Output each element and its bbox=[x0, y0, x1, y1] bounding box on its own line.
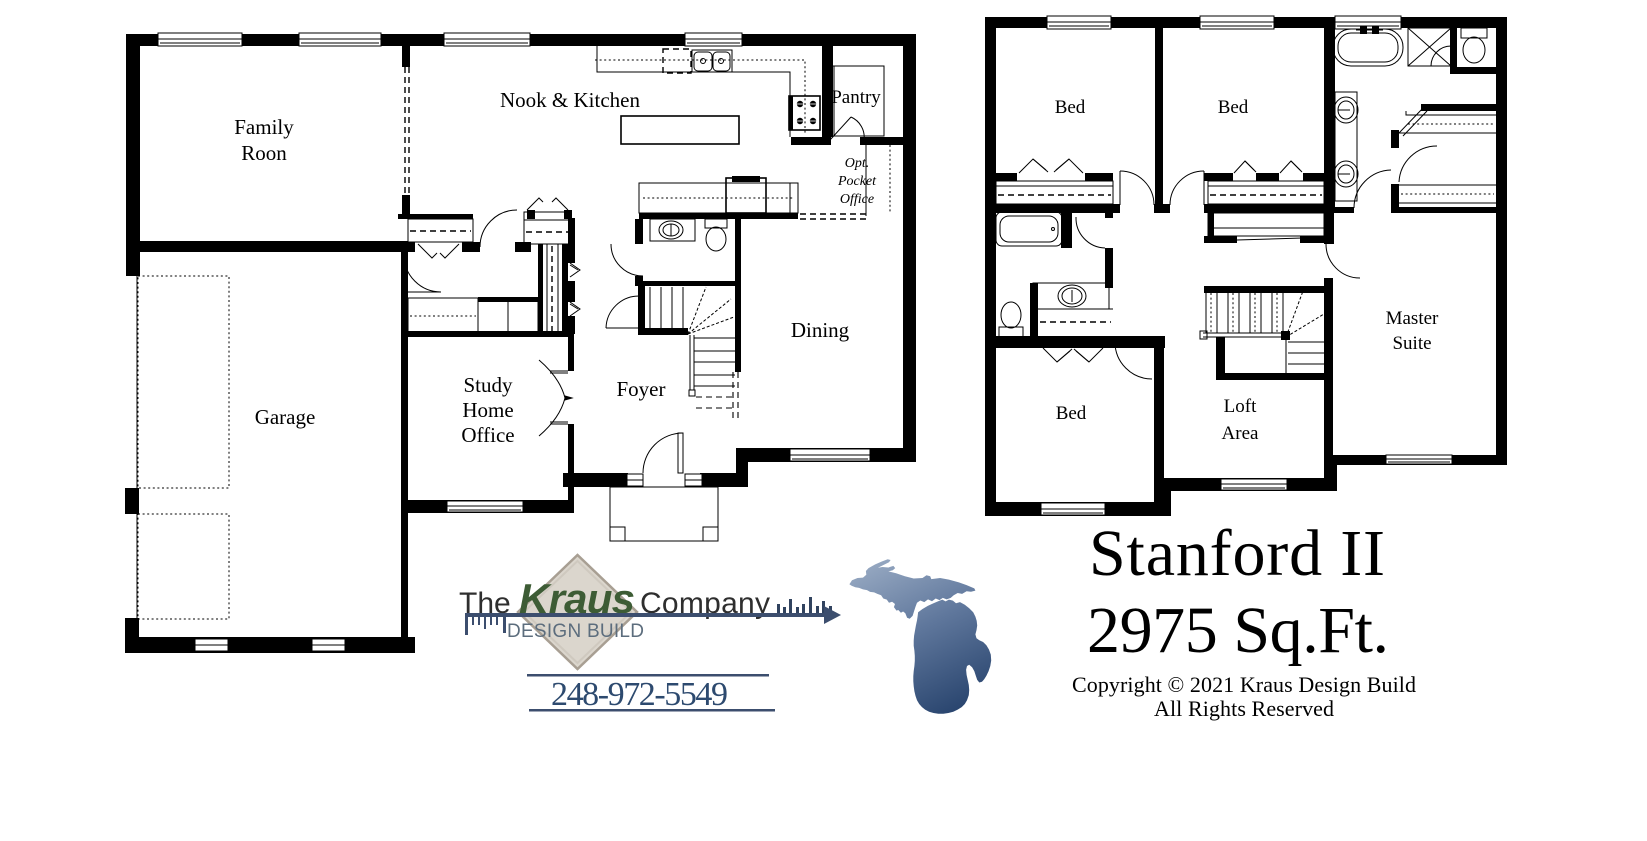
svg-text:Master: Master bbox=[1386, 308, 1439, 329]
svg-text:Bed: Bed bbox=[1056, 403, 1087, 424]
svg-text:Pantry: Pantry bbox=[831, 87, 881, 108]
svg-text:Pocket: Pocket bbox=[837, 174, 877, 189]
svg-text:Copyright © 2021 Kraus Design: Copyright © 2021 Kraus Design Build bbox=[1072, 672, 1416, 697]
svg-text:Study: Study bbox=[463, 373, 513, 397]
svg-text:DESIGN BUILD: DESIGN BUILD bbox=[507, 621, 644, 642]
svg-text:Office: Office bbox=[840, 192, 874, 207]
svg-text:Dining: Dining bbox=[791, 318, 850, 342]
svg-text:All Rights Reserved: All Rights Reserved bbox=[1154, 696, 1334, 721]
svg-text:Loft: Loft bbox=[1224, 396, 1257, 417]
svg-text:Roon: Roon bbox=[241, 141, 287, 165]
svg-text:Area: Area bbox=[1222, 423, 1259, 444]
svg-text:Family: Family bbox=[234, 115, 294, 139]
svg-text:Nook & Kitchen: Nook & Kitchen bbox=[500, 88, 640, 112]
svg-text:Home: Home bbox=[462, 398, 513, 422]
svg-text:Foyer: Foyer bbox=[617, 377, 666, 401]
svg-text:2975 Sq.Ft.: 2975 Sq.Ft. bbox=[1087, 594, 1389, 667]
svg-text:Bed: Bed bbox=[1218, 97, 1249, 118]
svg-text:248-972-5549: 248-972-5549 bbox=[551, 676, 728, 713]
svg-text:Bed: Bed bbox=[1055, 97, 1086, 118]
svg-text:Garage: Garage bbox=[255, 405, 316, 429]
svg-text:Suite: Suite bbox=[1392, 333, 1431, 354]
svg-text:Opt.: Opt. bbox=[845, 156, 870, 171]
svg-text:Stanford II: Stanford II bbox=[1089, 517, 1385, 590]
svg-text:Office: Office bbox=[461, 423, 514, 447]
